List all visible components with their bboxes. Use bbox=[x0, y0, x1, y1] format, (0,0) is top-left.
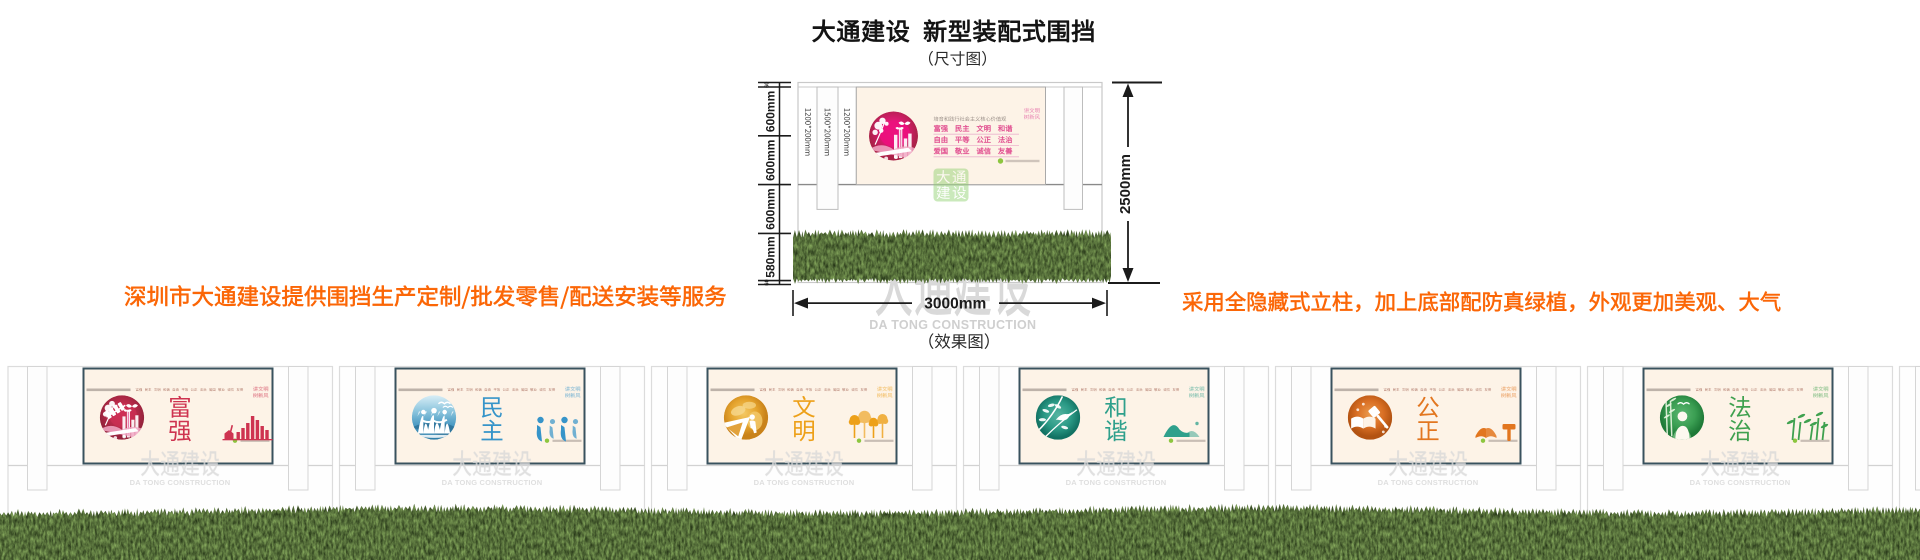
svg-text:DA TONG CONSTRUCTION: DA TONG CONSTRUCTION bbox=[754, 478, 855, 487]
svg-text:600mm: 600mm bbox=[764, 91, 778, 132]
svg-text:2500mm: 2500mm bbox=[1117, 154, 1134, 214]
svg-text:DA TONG CONSTRUCTION: DA TONG CONSTRUCTION bbox=[1066, 478, 1167, 487]
svg-text:DA TONG CONSTRUCTION: DA TONG CONSTRUCTION bbox=[869, 318, 1036, 332]
svg-text:DA TONG CONSTRUCTION: DA TONG CONSTRUCTION bbox=[442, 478, 543, 487]
svg-text:DA TONG CONSTRUCTION: DA TONG CONSTRUCTION bbox=[1690, 478, 1791, 487]
svg-text:600mm: 600mm bbox=[764, 140, 778, 181]
svg-text:60: 60 bbox=[764, 82, 770, 88]
svg-text:DA TONG CONSTRUCTION: DA TONG CONSTRUCTION bbox=[130, 478, 231, 487]
svg-text:600mm: 600mm bbox=[764, 188, 778, 229]
svg-text:580mm: 580mm bbox=[764, 236, 778, 277]
svg-text:60: 60 bbox=[764, 279, 770, 285]
svg-text:3000mm: 3000mm bbox=[924, 296, 986, 313]
svg-text:DA TONG CONSTRUCTION: DA TONG CONSTRUCTION bbox=[1378, 478, 1479, 487]
